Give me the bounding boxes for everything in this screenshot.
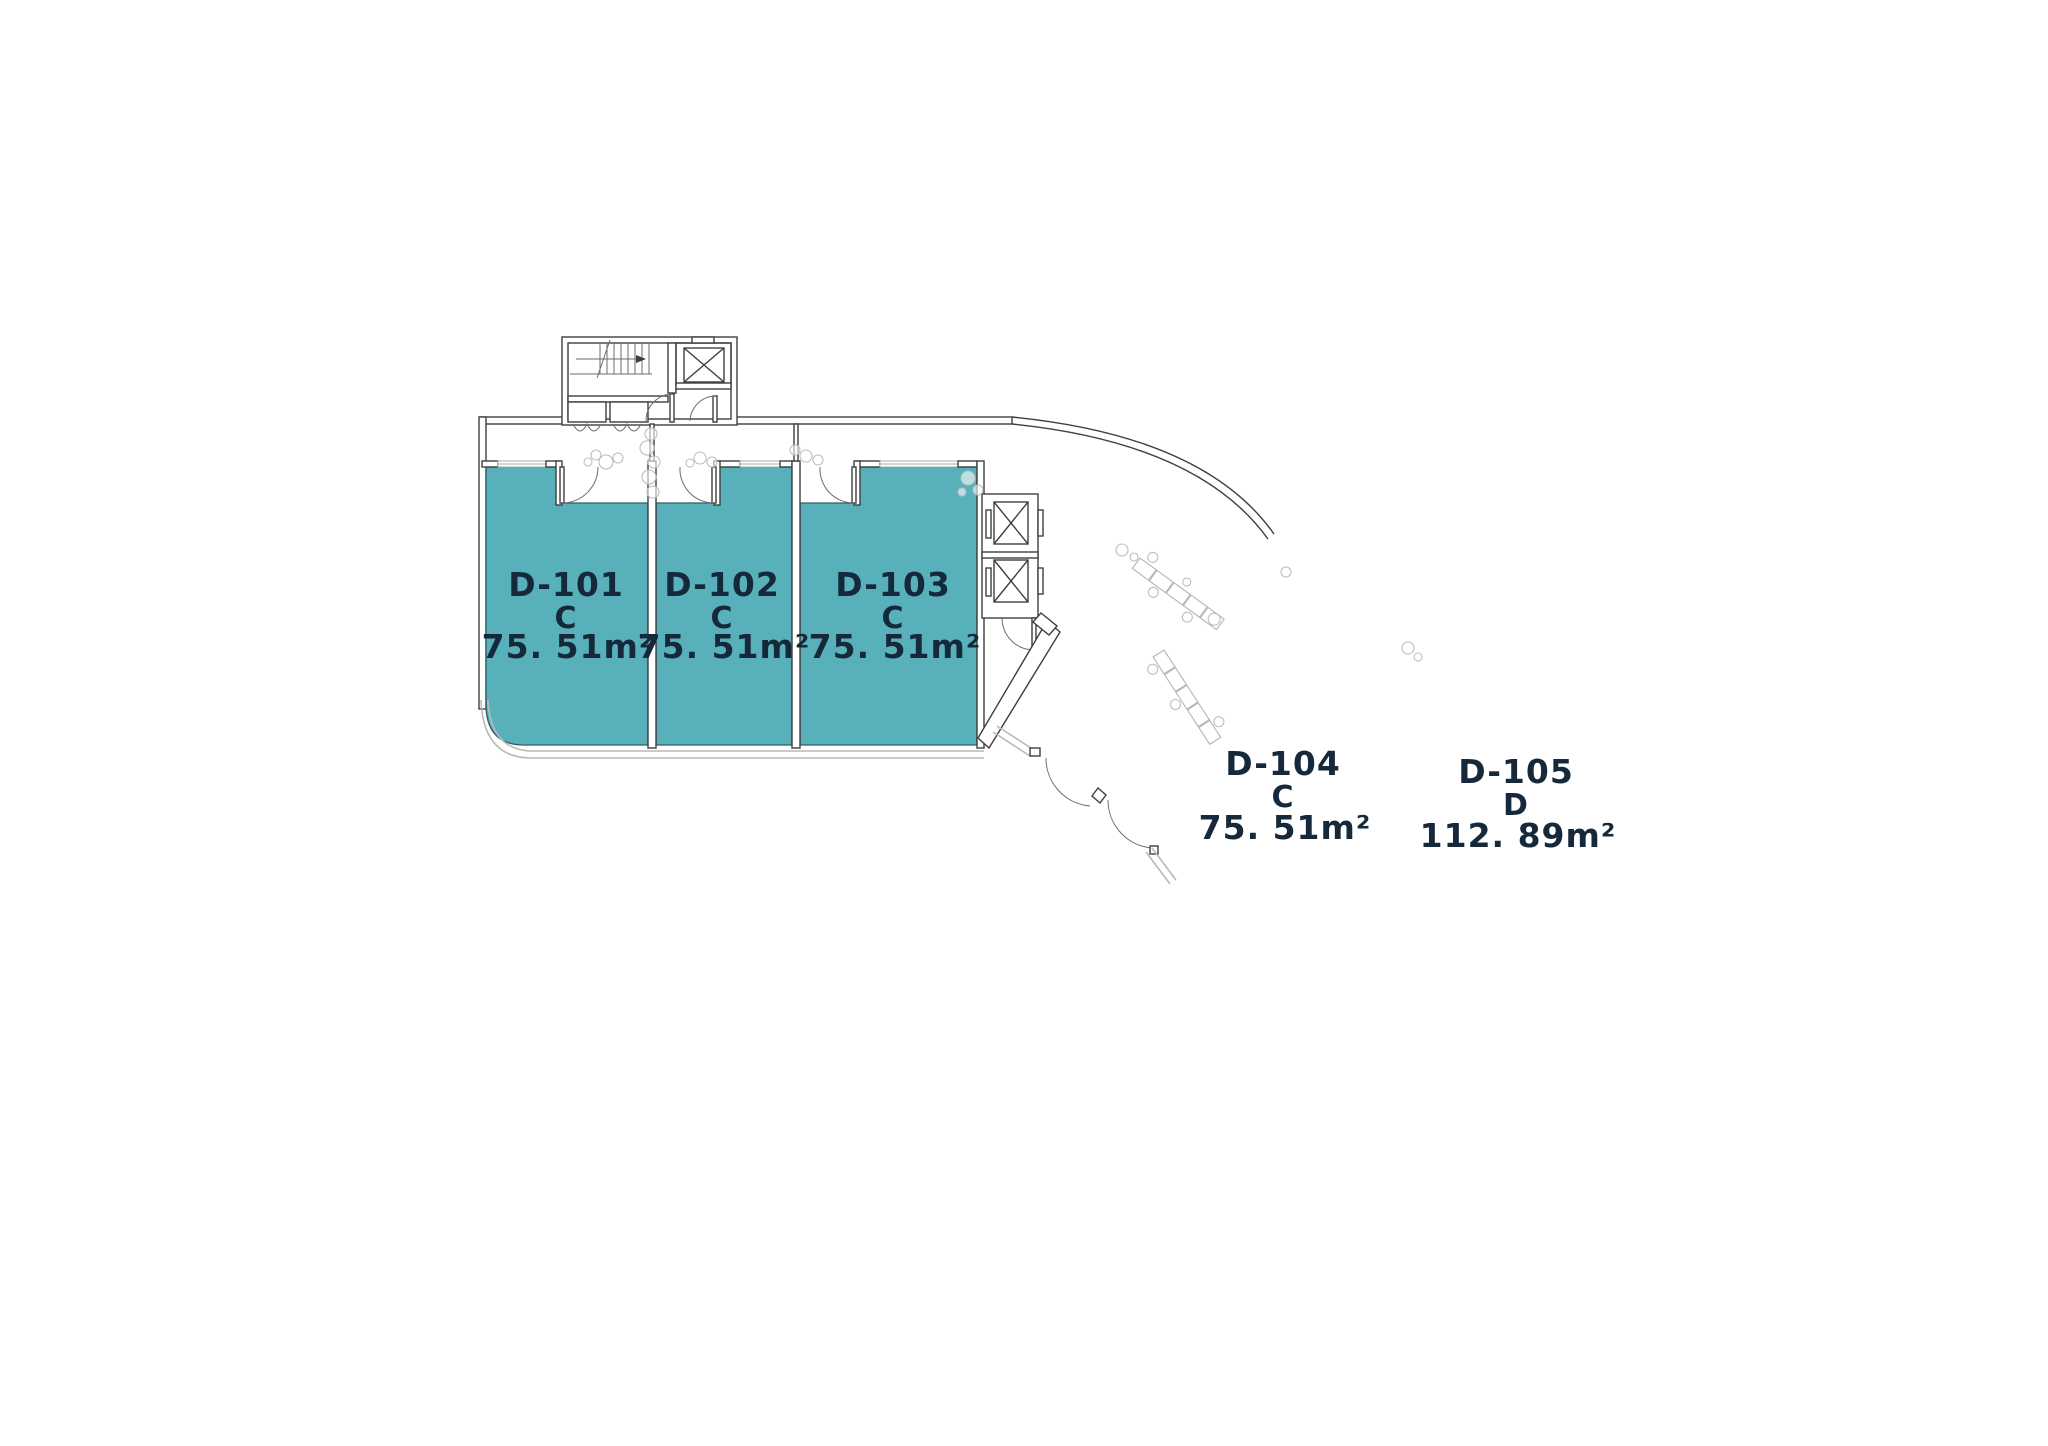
unit-id: D-103 (835, 565, 951, 604)
plant-icon (640, 428, 660, 498)
door-swing-icon (1002, 618, 1036, 650)
unit-area: 75. 51m² (638, 627, 811, 666)
left-wing (479, 337, 1274, 884)
stairwell-block-left (562, 337, 737, 431)
plant-icon (686, 452, 717, 467)
unit-label-d104: D-104 C 75. 51m² (1199, 744, 1372, 847)
unit-id: D-104 (1225, 744, 1341, 783)
plant-icon (1116, 544, 1422, 661)
unit-id: D-101 (508, 565, 624, 604)
door-swing-icon (680, 467, 716, 503)
unit-id: D-102 (664, 565, 780, 604)
entrance-doors (993, 726, 1176, 884)
unit-area: 112. 89m² (1420, 816, 1617, 855)
curved-corridor-wall (1012, 417, 1274, 539)
elevator-bay (982, 494, 1043, 618)
diagonal-wall (978, 613, 1060, 748)
door-swing-icon (1046, 758, 1090, 806)
unit-label-d105: D-105 D 112. 89m² (1420, 752, 1617, 855)
unit-area: 75. 51m² (1199, 808, 1372, 847)
unit-area: 75. 51m² (809, 627, 982, 666)
counter-row (1125, 547, 1231, 639)
floor-plan-canvas: D-101 C 75. 51m² D-102 C 75. 51m² D-103 … (0, 0, 2048, 1446)
counter-row (1143, 643, 1231, 750)
unit-area: 75. 51m² (482, 627, 655, 666)
door-swing-icon (1108, 800, 1152, 848)
door-swing-icon (820, 467, 856, 503)
floor-plan-page: D-101 C 75. 51m² D-102 C 75. 51m² D-103 … (0, 0, 2048, 1446)
plant-icon (584, 450, 623, 469)
unit-id: D-105 (1458, 752, 1574, 791)
door-swing-icon (560, 467, 598, 503)
